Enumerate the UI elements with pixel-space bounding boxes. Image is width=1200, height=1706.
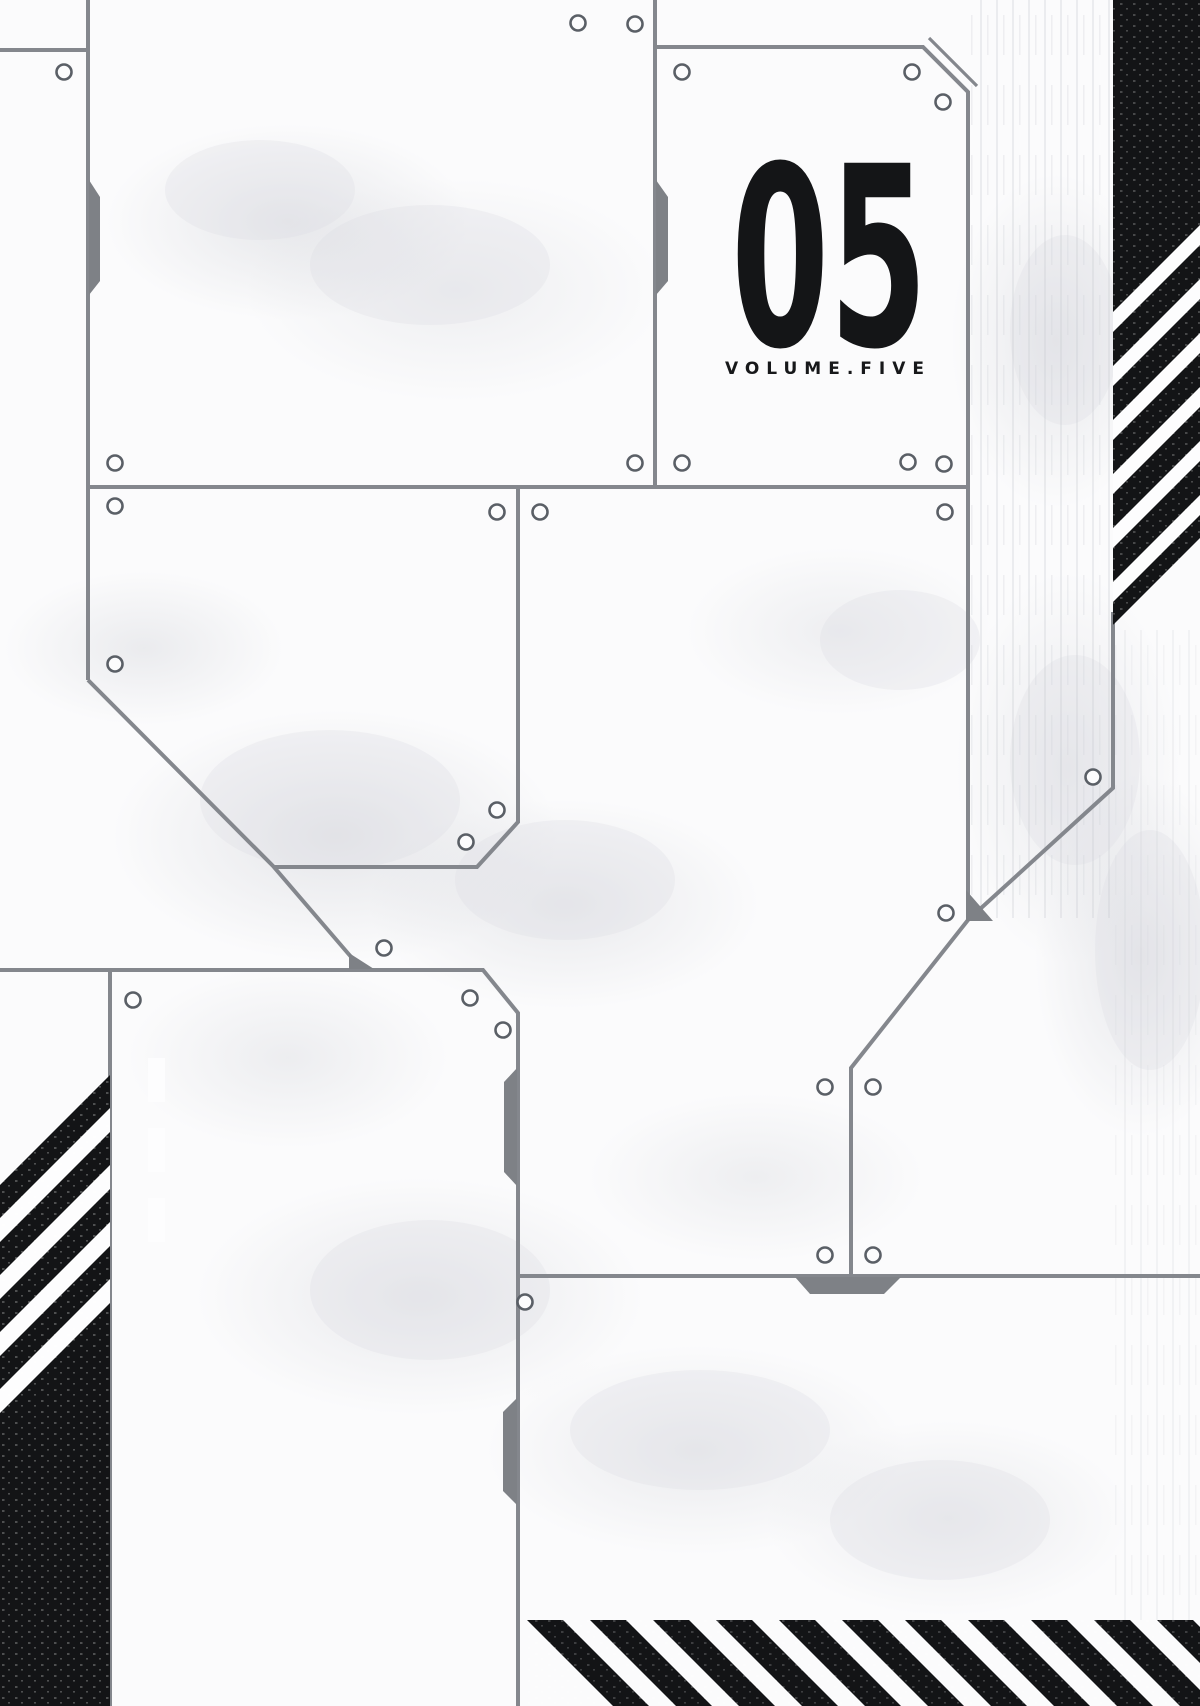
edge-tab — [504, 1068, 517, 1186]
vent-slot-icon — [148, 1128, 165, 1172]
speckle-overlay — [1113, 0, 1200, 625]
rivet-icon — [108, 456, 123, 471]
vent-slot-icon — [148, 1198, 165, 1242]
rivet-icon — [496, 1023, 511, 1038]
edge-tab — [89, 180, 100, 295]
hazard-white-stripes — [0, 1075, 110, 1706]
rivet-icon — [490, 505, 505, 520]
rivet-icon — [628, 456, 643, 471]
rivet-icon — [126, 993, 141, 1008]
rivet-icon — [675, 456, 690, 471]
rivet-icon — [459, 835, 474, 850]
vent-slots — [148, 1058, 165, 1242]
gusset-wedge — [349, 953, 374, 969]
texture-blob — [820, 590, 980, 690]
hazard-stripes-bottom-band-icon — [527, 1620, 1200, 1706]
rivet-icon — [818, 1248, 833, 1263]
texture-blob — [455, 820, 675, 940]
texture-blob — [310, 1220, 550, 1360]
hazard-white-stripes — [1113, 0, 1200, 625]
rivet-icon — [866, 1080, 881, 1095]
seam-notch-trapezoid — [795, 1277, 901, 1294]
rivet-icon — [936, 95, 951, 110]
hazard-stripes-top-right-icon — [1113, 0, 1200, 625]
rivet-icon — [108, 499, 123, 514]
vent-slot-icon — [148, 1058, 165, 1102]
rivet-icon — [939, 906, 954, 921]
rivet-icon — [1086, 770, 1101, 785]
speckle-overlay — [0, 1075, 110, 1706]
rivet-icon — [905, 65, 920, 80]
rivet-icon — [108, 657, 123, 672]
rivet-icon — [571, 16, 586, 31]
rivet-icon — [938, 505, 953, 520]
edge-tab — [656, 180, 668, 295]
texture-blob — [165, 140, 355, 240]
center-diagonal-seam — [851, 920, 968, 1276]
manga-volume-divider-page: 05 VOLUME.FIVE — [0, 0, 1200, 1706]
rivet-icon — [901, 455, 916, 470]
texture-blob — [830, 1460, 1050, 1580]
rivet-icon — [818, 1080, 833, 1095]
edge-tab — [503, 1398, 517, 1505]
rivet-icon — [490, 803, 505, 818]
texture-blob — [200, 730, 460, 870]
rivet-icon — [518, 1295, 533, 1310]
hazard-stripes-bottom-left-icon — [0, 1075, 110, 1706]
texture-blob — [570, 1370, 830, 1490]
rivet-icon — [628, 17, 643, 32]
volume-label: VOLUME.FIVE — [725, 359, 931, 379]
rivet-icon — [866, 1248, 881, 1263]
panel-line-art-canvas: 05 VOLUME.FIVE — [0, 0, 1200, 1706]
streak-texture-band — [1113, 630, 1200, 1620]
rivet-icon — [675, 65, 690, 80]
texture-blob — [310, 205, 550, 325]
rivet-icon — [377, 941, 392, 956]
rivet-icon — [533, 505, 548, 520]
rivet-icon — [463, 991, 478, 1006]
speckle-overlay — [527, 1620, 1200, 1706]
rivet-icon — [937, 457, 952, 472]
rivet-icon — [57, 65, 72, 80]
